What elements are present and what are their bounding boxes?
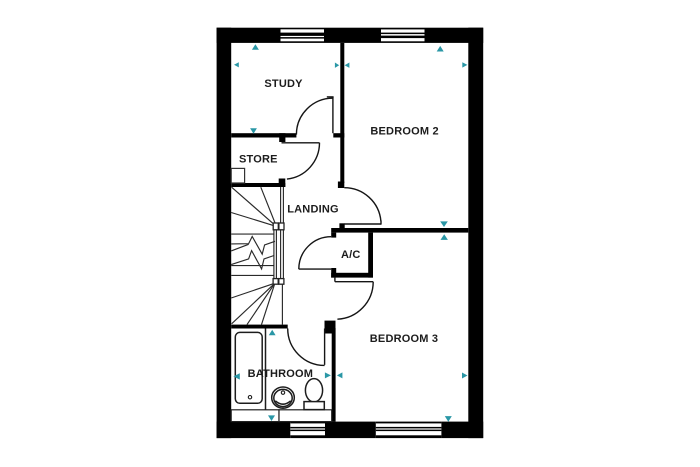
svg-text:BEDROOM 2: BEDROOM 2 <box>370 126 438 138</box>
svg-text:STUDY: STUDY <box>264 78 303 90</box>
svg-text:LANDING: LANDING <box>287 203 339 215</box>
svg-text:BATHROOM: BATHROOM <box>248 368 314 380</box>
svg-text:A/C: A/C <box>341 249 361 261</box>
svg-text:BEDROOM 3: BEDROOM 3 <box>370 333 438 345</box>
svg-text:STORE: STORE <box>239 154 278 166</box>
